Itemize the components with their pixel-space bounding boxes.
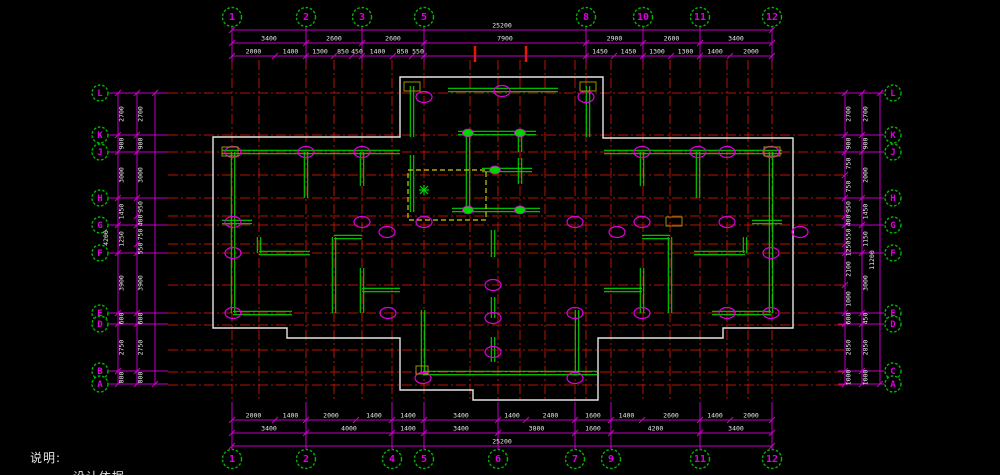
dimension-text: 1000	[862, 370, 870, 386]
dimension-text: 2700	[137, 106, 145, 122]
dimension-text: 2700	[845, 106, 853, 122]
axis-bubble-right-label: J	[890, 148, 895, 158]
dimension-text: 2100	[845, 261, 853, 277]
axis-bubble-bottom-label: 1	[229, 454, 235, 465]
dimension-text: 600	[137, 313, 145, 325]
dimension-text: 900	[845, 138, 853, 150]
axis-bubble-right-label: F	[890, 249, 895, 259]
dimension-text: 1400	[370, 48, 386, 56]
axis-bubble-bottom-label: 4	[389, 454, 395, 465]
axis-bubble-bottom-label: 6	[495, 454, 501, 465]
dimension-text: 2000	[743, 412, 759, 420]
filled-column-marker	[515, 206, 526, 214]
detail-dashed-box	[408, 170, 486, 220]
dimension-text: 750	[845, 158, 853, 170]
dimension-text: 1000	[845, 291, 853, 307]
dimension-text: 4200	[102, 230, 110, 246]
dimension-text: 800	[137, 372, 145, 384]
dimension-text: 850	[397, 48, 409, 56]
dimension-text: 550	[845, 229, 853, 241]
dimension-text: 1600	[585, 412, 601, 420]
dimension-text: 2400	[543, 412, 559, 420]
dimension-text: 600	[118, 313, 126, 325]
axis-bubble-right-label: A	[890, 380, 896, 390]
column-marker	[485, 347, 501, 358]
dimension-text: 2700	[862, 106, 870, 122]
dimension-text: 1400	[619, 412, 635, 420]
axis-bubble-left-label: H	[97, 194, 102, 204]
dimension-text: 900	[862, 138, 870, 150]
axis-bubble-left-label: L	[97, 89, 103, 99]
dimension-text: 3400	[728, 35, 744, 43]
dimension-text: 7900	[497, 35, 513, 43]
dimension-text: 1600	[585, 425, 601, 433]
column-marker	[792, 227, 808, 238]
axis-bubble-bottom-label: 2	[303, 454, 309, 465]
axis-bubble-right-label: H	[890, 194, 895, 204]
dimension-text: 600	[845, 313, 853, 325]
axis-bubble-top-label: 1	[229, 12, 235, 23]
dimension-text: 950	[845, 201, 853, 213]
dimension-text: 800	[118, 372, 126, 384]
dimension-text: 2850	[862, 340, 870, 356]
dimension-text: 2000	[246, 48, 262, 56]
dimension-text: 400	[845, 215, 853, 227]
dimension-text: 1400	[707, 48, 723, 56]
building-outline	[213, 77, 793, 400]
axis-bubble-top-label: 10	[637, 12, 649, 23]
axis-bubble-right-label: L	[890, 89, 896, 99]
axis-bubble-right-label: G	[890, 221, 895, 231]
dimension-text: 2600	[664, 35, 680, 43]
dimension-text: 3000	[118, 167, 126, 183]
column-marker	[225, 217, 241, 228]
dimension-text: 1450	[862, 204, 870, 220]
axis-bubble-top-label: 5	[421, 12, 427, 23]
dimension-text: 1400	[504, 412, 520, 420]
dimension-text: 11200	[868, 250, 876, 270]
dimension-text: 2750	[118, 340, 126, 356]
dimension-text: 400	[137, 215, 145, 227]
cad-drawing-canvas: 1235810111212456791112LKJHGFEDBALKJHGFED…	[0, 0, 1000, 475]
dimension-text: 450	[862, 313, 870, 325]
dimension-text: 3000	[862, 275, 870, 291]
dimension-text: 3400	[453, 412, 469, 420]
axis-bubble-top-label: 12	[766, 12, 778, 23]
dimension-text: 900	[137, 138, 145, 150]
axis-bubble-top-label: 8	[583, 12, 589, 23]
dimension-text: 1300	[649, 48, 665, 56]
floor-plan-drawing: 1235810111212456791112LKJHGFEDBALKJHGFED…	[0, 0, 1000, 475]
filled-column-marker	[490, 166, 501, 174]
dimension-text: 4000	[341, 425, 357, 433]
column-marker	[485, 313, 501, 324]
axis-bubble-right-label: D	[890, 320, 896, 330]
dimension-text: 1400	[707, 412, 723, 420]
filled-column-marker	[515, 129, 526, 137]
dimension-text: 1450	[621, 48, 637, 56]
dimension-text: 1400	[400, 412, 416, 420]
axis-bubble-left-label: K	[97, 131, 103, 141]
dimension-text: 1450	[592, 48, 608, 56]
axis-bubble-left-label: J	[97, 148, 102, 158]
dimension-text: 1000	[845, 370, 853, 386]
axis-bubble-bottom-label: 12	[766, 454, 778, 465]
column-pad	[404, 82, 420, 91]
dimension-text: 900	[118, 138, 126, 150]
dimension-text: 1400	[366, 412, 382, 420]
dimension-text: 25200	[492, 438, 512, 446]
notes-heading: 说明:	[30, 449, 61, 466]
dimension-text: 2700	[118, 106, 126, 122]
column-marker	[379, 227, 395, 238]
dimension-text: 1450	[118, 204, 126, 220]
dimension-text: 2600	[385, 35, 401, 43]
axis-bubble-left-label: D	[97, 320, 103, 330]
dimension-text: 3400	[261, 425, 277, 433]
axis-bubble-left-label: G	[97, 221, 102, 231]
dimension-text: 1150	[862, 231, 870, 247]
axis-bubble-top-label: 3	[359, 12, 365, 23]
axis-bubble-left-label: F	[97, 249, 102, 259]
dimension-text: 2850	[845, 340, 853, 356]
dimension-text: 3900	[137, 275, 145, 291]
dimension-text: 3400	[728, 425, 744, 433]
dimension-text: 2900	[607, 35, 623, 43]
dimension-text: 1250	[845, 241, 853, 257]
dimension-text: 950	[137, 201, 145, 213]
notes-first-line: 一.设计依据	[55, 468, 125, 475]
axis-bubble-top-label: 2	[303, 12, 309, 23]
dimension-text: 25200	[492, 22, 512, 30]
dimension-text: 2600	[326, 35, 342, 43]
dimension-text: 1250	[118, 231, 126, 247]
dimension-text: 550	[137, 243, 145, 255]
dimension-text: 450	[351, 48, 363, 56]
column-pad	[580, 82, 596, 91]
dimension-text: 3800	[529, 425, 545, 433]
filled-column-marker	[463, 206, 474, 214]
dimension-text: 1400	[283, 48, 299, 56]
dimension-text: 3900	[118, 275, 126, 291]
dimension-text: 2750	[137, 340, 145, 356]
dimension-text: 550	[412, 48, 424, 56]
axis-bubble-left-label: A	[97, 380, 103, 390]
axis-bubble-bottom-label: 9	[608, 454, 614, 465]
dimension-text: 850	[337, 48, 349, 56]
dimension-text: 750	[845, 181, 853, 193]
dimension-text: 2000	[246, 412, 262, 420]
dimension-text: 2000	[323, 412, 339, 420]
column-marker	[634, 217, 650, 228]
dimension-text: 3400	[261, 35, 277, 43]
dimension-text: 750	[137, 229, 145, 241]
dimension-text: 3400	[453, 425, 469, 433]
dimension-text: 1400	[400, 425, 416, 433]
axis-bubble-bottom-label: 11	[694, 454, 706, 465]
dimension-text: 3000	[137, 167, 145, 183]
dimension-text: 2600	[663, 412, 679, 420]
dimension-text: 1400	[283, 412, 299, 420]
column-marker	[494, 86, 510, 97]
axis-bubble-bottom-label: 5	[421, 454, 427, 465]
dimension-text: 4200	[648, 425, 664, 433]
axis-bubble-right-label: K	[890, 131, 896, 141]
dimension-text: 1300	[312, 48, 328, 56]
dimension-text: 1300	[678, 48, 694, 56]
dimension-text: 2000	[743, 48, 759, 56]
axis-bubble-bottom-label: 7	[572, 454, 578, 465]
dimension-text: 2000	[862, 167, 870, 183]
filled-column-marker	[463, 129, 474, 137]
axis-bubble-top-label: 11	[694, 12, 706, 23]
